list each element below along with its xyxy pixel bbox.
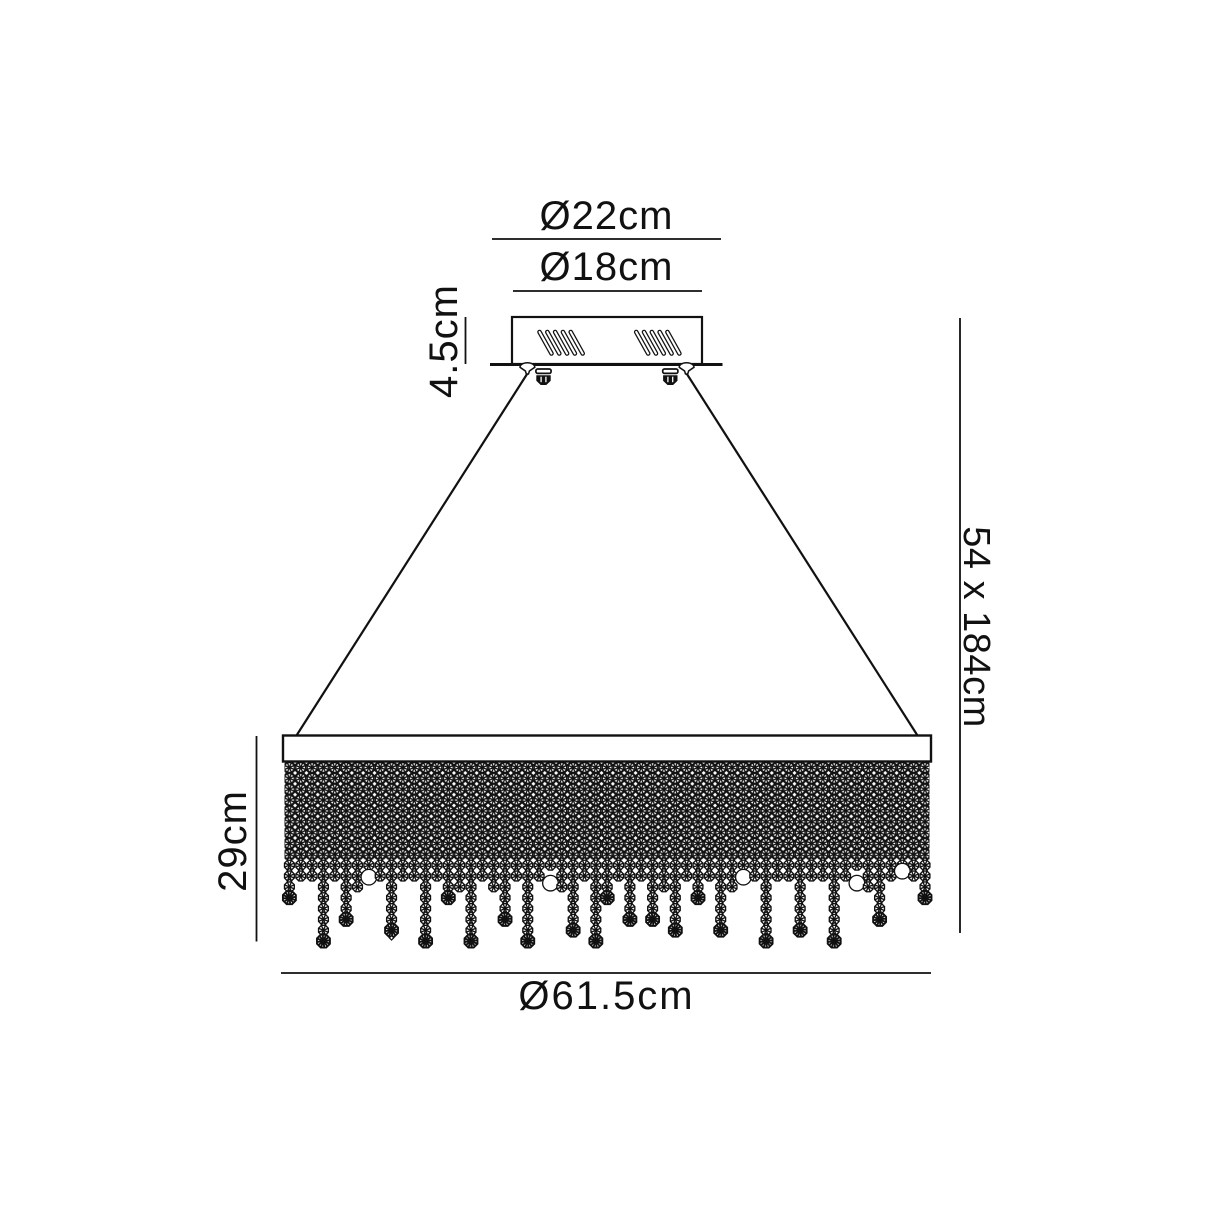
svg-text:54 x 184cm: 54 x 184cm <box>955 526 997 727</box>
svg-text:Ø22cm: Ø22cm <box>540 194 674 238</box>
svg-text:Ø61.5cm: Ø61.5cm <box>518 974 694 1018</box>
svg-text:29cm: 29cm <box>211 790 255 892</box>
svg-text:4.5cm: 4.5cm <box>422 284 466 398</box>
svg-text:Ø18cm: Ø18cm <box>540 245 674 289</box>
